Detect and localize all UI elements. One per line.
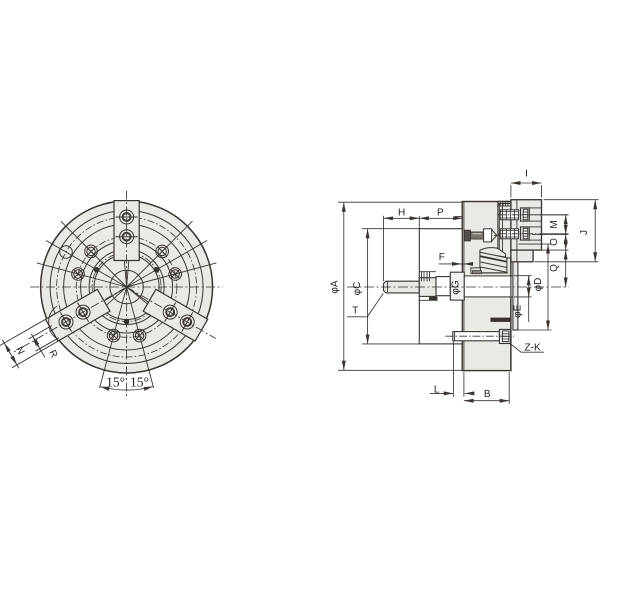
svg-text:J: J: [579, 230, 590, 235]
svg-text:φG: φG: [451, 280, 462, 294]
svg-text:T: T: [352, 305, 358, 316]
svg-text:15°: 15°: [130, 375, 149, 390]
svg-text:O: O: [549, 238, 560, 246]
svg-text:φC: φC: [352, 282, 363, 296]
svg-text:N: N: [13, 345, 26, 356]
svg-text:M: M: [549, 220, 560, 228]
svg-text:Q: Q: [549, 264, 560, 272]
svg-text:I: I: [525, 169, 528, 180]
svg-text:φE: φE: [513, 304, 524, 317]
svg-text:P: P: [437, 207, 444, 218]
svg-text:L: L: [434, 384, 440, 395]
svg-text:φA: φA: [330, 280, 341, 293]
svg-text:H: H: [398, 207, 405, 218]
svg-text:Z-K: Z-K: [525, 343, 541, 354]
svg-text:φD: φD: [533, 278, 544, 292]
svg-text:R: R: [46, 348, 59, 359]
svg-text:15°: 15°: [106, 375, 125, 390]
svg-text:B: B: [484, 389, 491, 400]
svg-text:F: F: [439, 252, 445, 263]
